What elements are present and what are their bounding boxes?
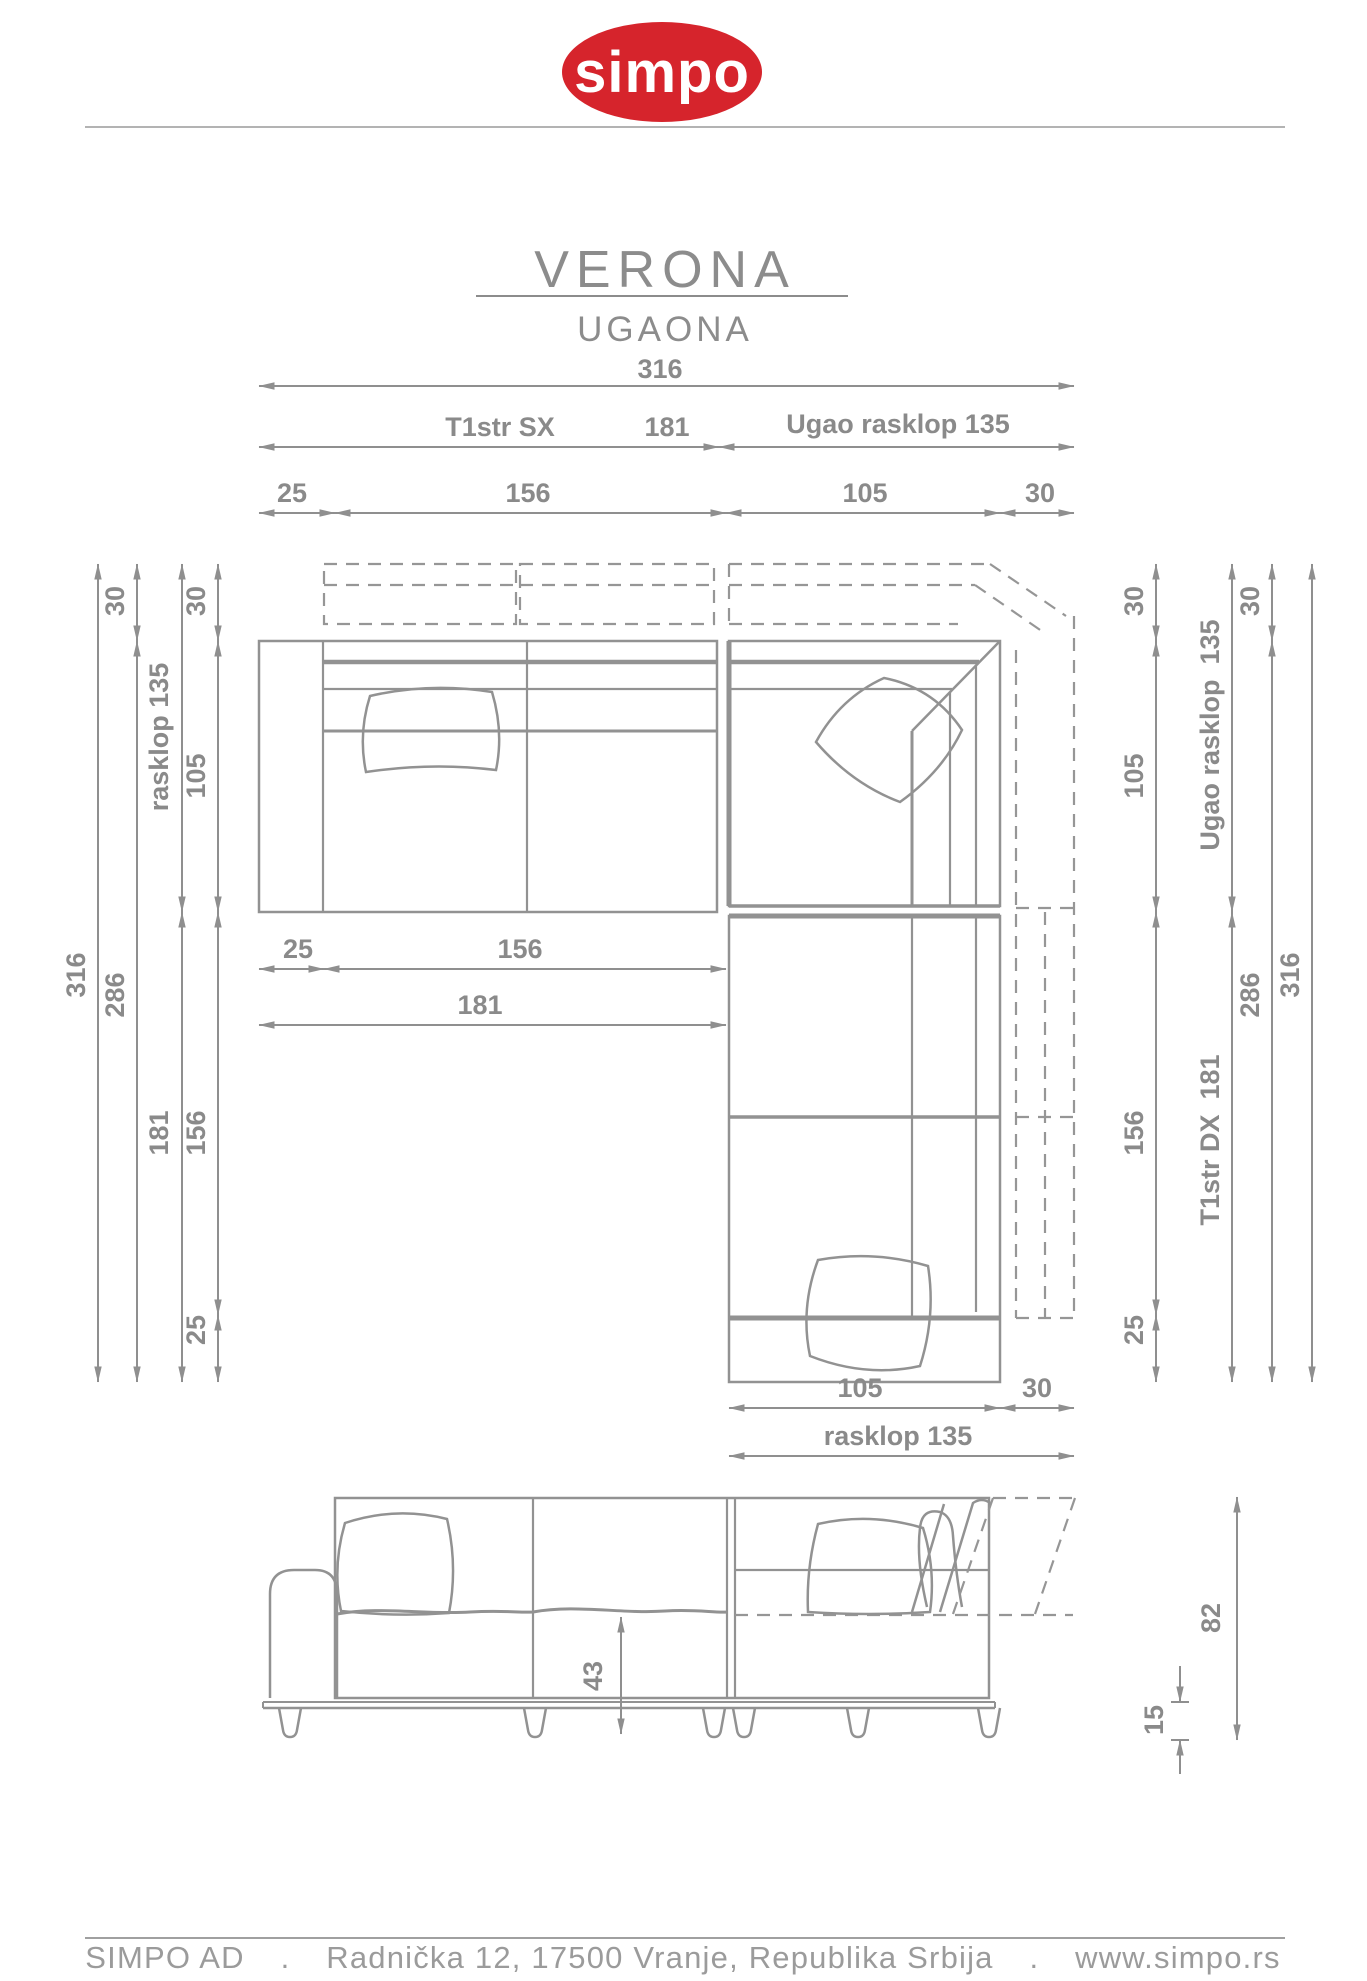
- dim-181-top: 181: [644, 412, 689, 442]
- footer-dot: .: [1029, 1940, 1039, 1975]
- dim-30-bottom: 30: [1022, 1373, 1052, 1403]
- plan-dims-middle: 25 156 181: [259, 934, 726, 1025]
- dim-25-mid: 25: [283, 934, 313, 964]
- pillow-outline: [808, 1519, 932, 1614]
- dim-105-right: 105: [1119, 753, 1149, 798]
- simpo-logo-text: simpo: [574, 40, 750, 105]
- plan-dims-right: 30 105 156 25 Ugao rasklop 135 T1str DX …: [1119, 564, 1312, 1382]
- label-rasklop-left: rasklop 135: [144, 663, 174, 812]
- plan-dims-left: 316 30 286 rasklop 135 181 30 105 156 25: [61, 564, 218, 1382]
- page-title: VERONA: [534, 241, 796, 299]
- label-ugao-rasklop-right: Ugao rasklop 135: [1195, 619, 1225, 850]
- front-armrest: [270, 1570, 337, 1698]
- dim-30b-right: 30: [1235, 586, 1265, 616]
- drawing-canvas: simpo VERONA UGAONA 316 T1str SX 181 Uga…: [0, 0, 1367, 1981]
- dim-316-left: 316: [61, 952, 91, 997]
- foldout-dashed-top: [324, 564, 1066, 634]
- front-dims: 43 82 15: [578, 1497, 1237, 1774]
- dim-181-mid: 181: [457, 990, 502, 1020]
- label-ugao-rasklop-top: Ugao rasklop 135: [786, 409, 1010, 439]
- footer-address: Radnička 12, 17500 Vranje, Republika Srb…: [326, 1940, 993, 1975]
- dim-286-left: 286: [100, 972, 130, 1017]
- footer-text: SIMPO AD . Radnička 12, 17500 Vranje, Re…: [85, 1940, 1280, 1975]
- dim-30b-left: 30: [181, 586, 211, 616]
- dim-30-left: 30: [100, 586, 130, 616]
- front-foldout-dashed: [953, 1498, 1075, 1614]
- sofa-leg: [847, 1708, 869, 1737]
- dim-43: 43: [578, 1661, 608, 1691]
- dim-25-left: 25: [181, 1315, 211, 1345]
- dim-105-bottom: 105: [837, 1373, 882, 1403]
- footer-website: www.simpo.rs: [1074, 1940, 1281, 1975]
- dim-30-top: 30: [1025, 478, 1055, 508]
- dim-15: 15: [1139, 1705, 1169, 1735]
- dim-156-right: 156: [1119, 1110, 1149, 1155]
- page-footer: SIMPO AD . Radnička 12, 17500 Vranje, Re…: [85, 1938, 1285, 1975]
- dim-316-right: 316: [1275, 952, 1305, 997]
- sofa-leg: [978, 1708, 1000, 1737]
- footer-dot: .: [281, 1940, 291, 1975]
- dim-30-right: 30: [1119, 586, 1149, 616]
- dim-25-top: 25: [277, 478, 307, 508]
- plan-drawing: [259, 564, 1074, 1382]
- label-t1str-dx: T1str DX 181: [1195, 1054, 1225, 1225]
- plan-corner-unit: [729, 641, 1000, 906]
- label-t1str-sx: T1str SX: [445, 412, 555, 442]
- foldout-dashed-right: [1016, 616, 1074, 1318]
- label-rasklop-bottom: rasklop 135: [824, 1421, 973, 1451]
- dim-25-right: 25: [1119, 1315, 1149, 1345]
- dim-181-left: 181: [144, 1110, 174, 1155]
- dim-105-left: 105: [181, 753, 211, 798]
- page-subtitle: UGAONA: [577, 310, 753, 349]
- pillow-outline: [816, 678, 962, 802]
- plan-left-unit: [259, 641, 717, 912]
- title-block: VERONA UGAONA: [476, 241, 848, 349]
- dim-156-left: 156: [181, 1110, 211, 1155]
- dim-82: 82: [1196, 1603, 1226, 1633]
- sofa-leg: [524, 1708, 546, 1737]
- front-legs: [279, 1708, 1000, 1737]
- front-body: [335, 1498, 989, 1698]
- dim-156-mid: 156: [497, 934, 542, 964]
- technical-drawing-page: simpo VERONA UGAONA 316 T1str SX 181 Uga…: [0, 0, 1367, 1981]
- plan-dims-bottom: 105 30 rasklop 135: [729, 1373, 1074, 1456]
- pillow-outline: [337, 1513, 453, 1614]
- sofa-leg: [703, 1708, 725, 1737]
- front-view: 43 82 15: [263, 1497, 1237, 1774]
- dim-105-top: 105: [842, 478, 887, 508]
- sofa-leg: [279, 1708, 301, 1737]
- plan-dims-top: 316 T1str SX 181 Ugao rasklop 135 25 156…: [259, 354, 1074, 513]
- plan-right-unit: [729, 916, 1000, 1382]
- dim-316-top: 316: [637, 354, 682, 384]
- brand-header: simpo: [85, 22, 1285, 127]
- dim-286-right: 286: [1235, 972, 1265, 1017]
- sofa-leg: [733, 1708, 755, 1737]
- dim-156-top: 156: [505, 478, 550, 508]
- footer-company: SIMPO AD: [85, 1940, 244, 1975]
- front-base: [263, 1702, 995, 1708]
